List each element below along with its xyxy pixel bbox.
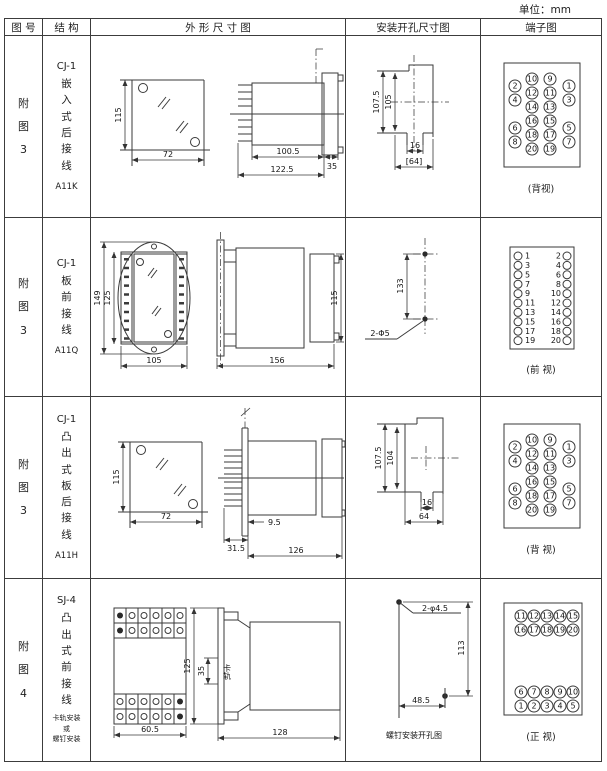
svg-text:3: 3 [566,456,571,465]
terminal-view-label: (前 视) [526,362,555,376]
svg-text:16: 16 [527,477,537,486]
outline-drawing-sj4: 60.5 125 35 卡轨 [92,586,345,754]
svg-text:2: 2 [512,442,517,451]
svg-text:16: 16 [409,141,419,150]
svg-text:104: 104 [386,450,395,465]
svg-text:卡轨: 卡轨 [222,663,231,681]
svg-text:2-Φ5: 2-Φ5 [370,329,389,338]
svg-text:115: 115 [330,290,339,305]
terminal-view-label: (背 视) [526,542,555,556]
svg-text:9: 9 [547,435,552,444]
svg-text:1: 1 [566,442,571,451]
svg-text:13: 13 [525,308,535,317]
row2-outline-cell: 149 125 105 [91,218,346,397]
svg-text:11: 11 [545,88,555,97]
svg-text:15: 15 [545,477,555,486]
svg-text:31.5: 31.5 [227,544,245,553]
terminal-diagram-back-view: 1012141618209111315171924681357 [481,58,601,176]
structure-name: 凸出式前接线 [61,610,72,708]
svg-text:35: 35 [326,162,336,171]
svg-text:16: 16 [421,498,431,507]
structure-name: 嵌入式后接线 [61,76,72,174]
svg-text:2: 2 [531,701,536,710]
svg-text:4: 4 [512,456,517,465]
svg-text:15: 15 [568,611,578,620]
install-caption: 螺钉安装开孔图 [386,730,442,740]
model-label: CJ-1 [57,61,77,72]
svg-text:105: 105 [384,94,393,109]
svg-text:18: 18 [527,491,537,500]
fig-no-text: 附图4 [18,635,29,704]
svg-text:126: 126 [288,546,303,555]
side-view: 100.5 35 122.5 [230,49,344,178]
svg-text:[64]: [64] [405,157,421,166]
type-code: A11H [55,551,78,561]
svg-text:13: 13 [542,611,552,620]
svg-text:17: 17 [545,130,555,139]
svg-text:14: 14 [555,611,565,620]
svg-text:8: 8 [544,687,549,696]
svg-text:10: 10 [527,74,537,83]
row1-terminal-cell: 1012141618209111315171924681357 (背视) [481,36,601,218]
svg-text:11: 11 [516,611,526,620]
svg-text:10: 10 [568,687,578,696]
svg-text:6: 6 [556,270,561,279]
svg-text:7: 7 [566,498,571,507]
header-install-dims: 安装开孔尺寸图 [346,19,481,36]
svg-text:107.5: 107.5 [372,90,381,113]
svg-text:115: 115 [112,469,121,484]
header-outline-dims: 外 形 尺 寸 图 [91,19,346,36]
row2-terminal-cell: 1357911131517192468101214161820 (前 视) [481,218,601,397]
svg-text:128: 128 [272,728,287,737]
svg-text:16: 16 [527,116,537,125]
svg-text:16: 16 [516,625,526,634]
svg-text:1: 1 [525,251,530,260]
svg-text:20: 20 [551,336,561,345]
svg-text:11: 11 [525,298,535,307]
row3-install-cell: 107.5 104 16 64 [346,397,481,579]
svg-text:2-φ4.5: 2-φ4.5 [422,604,448,613]
svg-text:7: 7 [531,687,536,696]
svg-text:133: 133 [396,278,405,293]
svg-text:3: 3 [525,261,530,270]
structure-name: 凸出式板后接线 [61,429,72,543]
svg-text:4: 4 [512,95,517,104]
svg-text:18: 18 [527,130,537,139]
row3-outline-cell: 115 72 [91,397,346,579]
structure-name: 板前接线 [61,273,72,338]
type-code: A11K [55,182,77,192]
svg-text:19: 19 [525,336,535,345]
svg-text:149: 149 [93,290,102,305]
row3-terminal-cell: 1012141618209111315171924681357 (背 视) [481,397,601,579]
model-label: SJ-4 [57,595,76,606]
svg-text:9: 9 [547,74,552,83]
svg-text:19: 19 [555,625,565,634]
svg-text:8: 8 [512,498,517,507]
svg-text:3: 3 [544,701,549,710]
unit-label: 单位：mm [519,2,571,17]
terminal-diagram-front-view: 1112131415161718192067891012345 [481,598,601,724]
manual-page: 单位：mm 图 号 结 构 外 形 尺 寸 图 安装开孔尺寸图 端子图 附图3 … [0,0,607,771]
svg-text:20: 20 [527,144,537,153]
svg-text:60.5: 60.5 [141,725,159,734]
row4-structure: SJ-4 凸出式前接线 卡轨安装 或 螺钉安装 [43,579,91,761]
svg-text:5: 5 [570,701,575,710]
svg-text:5: 5 [566,123,571,132]
svg-text:35: 35 [197,666,206,676]
row4-fig-no: 附图4 [5,579,43,761]
svg-text:19: 19 [545,144,555,153]
svg-text:9: 9 [525,289,530,298]
svg-text:5: 5 [525,270,530,279]
fig-no-text: 附图3 [18,272,29,341]
install-cutout-a11h: 107.5 104 16 64 [347,400,480,576]
svg-text:14: 14 [527,102,537,111]
svg-text:13: 13 [545,463,555,472]
svg-text:15: 15 [545,116,555,125]
svg-text:72: 72 [160,512,170,521]
svg-text:113: 113 [457,640,466,655]
svg-text:15: 15 [525,317,535,326]
header-terminal-diagram: 端子图 [481,19,601,36]
svg-text:14: 14 [527,463,537,472]
install-holes-sj4: 2-φ4.5 113 48.5 螺钉安装开孔图 [347,586,480,754]
row1-structure: CJ-1 嵌入式后接线 A11K [43,36,91,218]
row3-fig-no: 附图3 [5,397,43,579]
svg-text:18: 18 [551,326,561,335]
svg-text:17: 17 [525,326,535,335]
svg-text:6: 6 [518,687,523,696]
row2-fig-no: 附图3 [5,218,43,397]
svg-text:7: 7 [566,137,571,146]
svg-text:2: 2 [512,81,517,90]
svg-text:4: 4 [557,701,562,710]
svg-text:18: 18 [542,625,552,634]
svg-text:9.5: 9.5 [268,518,281,527]
svg-text:17: 17 [529,625,539,634]
row1-fig-no: 附图3 [5,36,43,218]
header-structure: 结 构 [43,19,91,36]
install-cutout-a11k: 107.5 105 16 [64] [347,39,480,215]
row4-outline-cell: 60.5 125 35 卡轨 [91,579,346,761]
model-label: CJ-1 [57,414,77,425]
svg-text:107.5: 107.5 [374,446,383,469]
svg-text:12: 12 [529,611,539,620]
svg-text:125: 125 [183,658,192,673]
row2-structure: CJ-1 板前接线 A11Q [43,218,91,397]
svg-text:48.5: 48.5 [412,696,430,705]
svg-text:13: 13 [545,102,555,111]
svg-text:2: 2 [556,251,561,260]
svg-text:12: 12 [527,449,537,458]
row3-structure: CJ-1 凸出式板后接线 A11H [43,397,91,579]
outline-drawing-a11q: 149 125 105 [92,220,345,394]
row4-install-cell: 2-φ4.5 113 48.5 螺钉安装开孔图 [346,579,481,761]
front-view: 115 72 [112,442,208,528]
svg-text:12: 12 [551,298,561,307]
svg-text:20: 20 [568,625,578,634]
svg-text:100.5: 100.5 [276,147,299,156]
front-view: 115 72 [114,80,210,166]
svg-text:19: 19 [545,505,555,514]
svg-text:16: 16 [551,317,561,326]
front-view: 149 125 105 [93,242,190,369]
mount-note: 卡轨安装 或 螺钉安装 [53,713,81,745]
dimension-table: 图 号 结 构 外 形 尺 寸 图 安装开孔尺寸图 端子图 附图3 CJ-1 嵌… [4,18,602,762]
svg-text:6: 6 [512,123,517,132]
row1-install-cell: 107.5 105 16 [64] [346,36,481,218]
svg-text:1: 1 [518,701,523,710]
svg-text:7: 7 [525,279,530,288]
row2-install-cell: 133 2-Φ5 [346,218,481,397]
side-view: 125 35 卡轨 128 [183,608,340,741]
svg-text:105: 105 [146,356,161,365]
row4-terminal-cell: 1112131415161718192067891012345 (正 视) [481,579,601,761]
terminal-diagram-front-view: 1357911131517192468101214161820 [481,239,601,357]
row1-outline-cell: 115 72 [91,36,346,218]
svg-text:6: 6 [512,484,517,493]
svg-text:1: 1 [566,81,571,90]
terminal-diagram-back-view: 1012141618209111315171924681357 [481,419,601,537]
svg-text:8: 8 [512,137,517,146]
svg-text:64: 64 [418,512,428,521]
front-view: 60.5 [114,608,186,738]
type-code: A11Q [55,346,78,356]
outline-drawing-a11k: 115 72 [92,39,345,215]
svg-text:122.5: 122.5 [270,165,293,174]
svg-text:14: 14 [551,308,561,317]
svg-text:115: 115 [114,107,123,122]
terminal-view-label: (背视) [528,181,554,195]
svg-text:72: 72 [162,150,172,159]
terminal-view-label: (正 视) [526,729,555,743]
header-fig-no: 图 号 [5,19,43,36]
svg-text:9: 9 [557,687,562,696]
install-holes-a11q: 133 2-Φ5 [347,220,480,394]
svg-text:4: 4 [556,261,561,270]
svg-text:17: 17 [545,491,555,500]
svg-text:12: 12 [527,88,537,97]
svg-text:156: 156 [269,356,284,365]
side-view: 156 115 [217,232,344,369]
svg-text:20: 20 [527,505,537,514]
svg-text:5: 5 [566,484,571,493]
side-view: 9.5 31.5 126 [218,408,345,559]
model-label: CJ-1 [57,258,77,269]
svg-text:10: 10 [551,289,561,298]
svg-text:3: 3 [566,95,571,104]
svg-text:8: 8 [556,279,561,288]
svg-text:10: 10 [527,435,537,444]
fig-no-text: 附图3 [18,453,29,522]
svg-text:125: 125 [103,290,112,305]
svg-text:11: 11 [545,449,555,458]
outline-drawing-a11h: 115 72 [92,400,345,576]
fig-no-text: 附图3 [18,92,29,161]
